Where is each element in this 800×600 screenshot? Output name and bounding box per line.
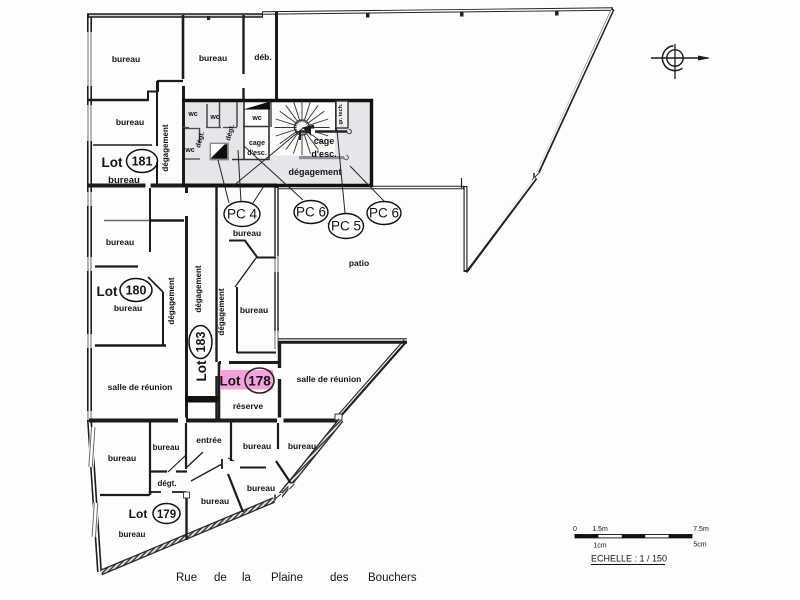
svg-text:179: 179: [157, 509, 176, 521]
svg-text:la: la: [242, 572, 252, 584]
svg-text:bureau: bureau: [114, 303, 142, 313]
svg-text:183: 183: [194, 332, 208, 353]
svg-text:bureau: bureau: [199, 53, 227, 63]
svg-text:de: de: [214, 572, 227, 584]
svg-text:patio: patio: [349, 258, 369, 268]
svg-text:bureau: bureau: [119, 530, 146, 539]
svg-text:cage: cage: [314, 136, 335, 146]
svg-text:bureau: bureau: [108, 175, 140, 186]
svg-text:PC 6: PC 6: [369, 206, 399, 221]
svg-text:bureau: bureau: [153, 443, 180, 452]
svg-text:des: des: [330, 572, 349, 584]
svg-text:entrée: entrée: [196, 435, 222, 445]
svg-text:5cm: 5cm: [693, 542, 706, 549]
svg-text:PC 6: PC 6: [296, 205, 326, 220]
svg-text:Lot: Lot: [220, 374, 241, 389]
svg-text:wc: wc: [251, 115, 261, 122]
svg-text:gr. tech.: gr. tech.: [338, 103, 344, 125]
svg-text:réserve: réserve: [233, 401, 264, 411]
svg-text:dégagement: dégagement: [167, 277, 176, 324]
svg-text:cage: cage: [249, 140, 265, 147]
svg-text:1.5m: 1.5m: [592, 526, 608, 533]
svg-text:wc: wc: [209, 114, 219, 121]
svg-text:0: 0: [573, 526, 577, 533]
svg-text:salle de réunion: salle de réunion: [108, 382, 173, 392]
svg-text:bureau: bureau: [288, 441, 316, 451]
svg-text:Bouchers: Bouchers: [368, 572, 417, 584]
svg-text:bureau: bureau: [233, 228, 261, 238]
svg-text:dégagement: dégagement: [161, 124, 170, 171]
svg-text:wc: wc: [184, 147, 194, 154]
svg-text:ECHELLE : 1 / 150: ECHELLE : 1 / 150: [591, 554, 667, 564]
svg-text:bureau: bureau: [247, 483, 275, 493]
svg-text:7.5m: 7.5m: [693, 526, 709, 533]
svg-text:salle de réunion: salle de réunion: [297, 374, 362, 384]
svg-text:1cm: 1cm: [593, 543, 606, 550]
svg-text:Lot: Lot: [129, 507, 148, 521]
svg-text:PC 4: PC 4: [227, 207, 258, 222]
svg-text:déb.: déb.: [254, 52, 271, 62]
svg-text:Lot: Lot: [102, 155, 123, 170]
svg-text:d'esc.: d'esc.: [311, 149, 336, 159]
svg-text:Lot: Lot: [97, 284, 118, 299]
svg-text:bureau: bureau: [108, 453, 136, 463]
svg-text:dégt.: dégt.: [157, 479, 176, 488]
svg-text:180: 180: [126, 284, 147, 298]
svg-text:bureau: bureau: [112, 54, 140, 64]
svg-text:bureau: bureau: [243, 441, 271, 451]
svg-text:178: 178: [248, 374, 271, 389]
svg-text:bureau: bureau: [116, 117, 144, 127]
svg-text:Rue: Rue: [176, 572, 197, 584]
svg-text:dégagement: dégagement: [194, 265, 203, 312]
svg-text:dégagement: dégagement: [288, 167, 341, 177]
svg-text:dégagement: dégagement: [217, 288, 226, 335]
svg-text:wc: wc: [187, 111, 197, 118]
svg-text:bureau: bureau: [201, 496, 229, 506]
svg-text:Lot: Lot: [194, 360, 209, 381]
svg-text:Plaine: Plaine: [271, 572, 303, 584]
svg-text:PC 5: PC 5: [331, 219, 361, 234]
svg-text:181: 181: [132, 155, 153, 169]
svg-text:bureau: bureau: [240, 305, 268, 315]
svg-text:bureau: bureau: [106, 237, 134, 247]
